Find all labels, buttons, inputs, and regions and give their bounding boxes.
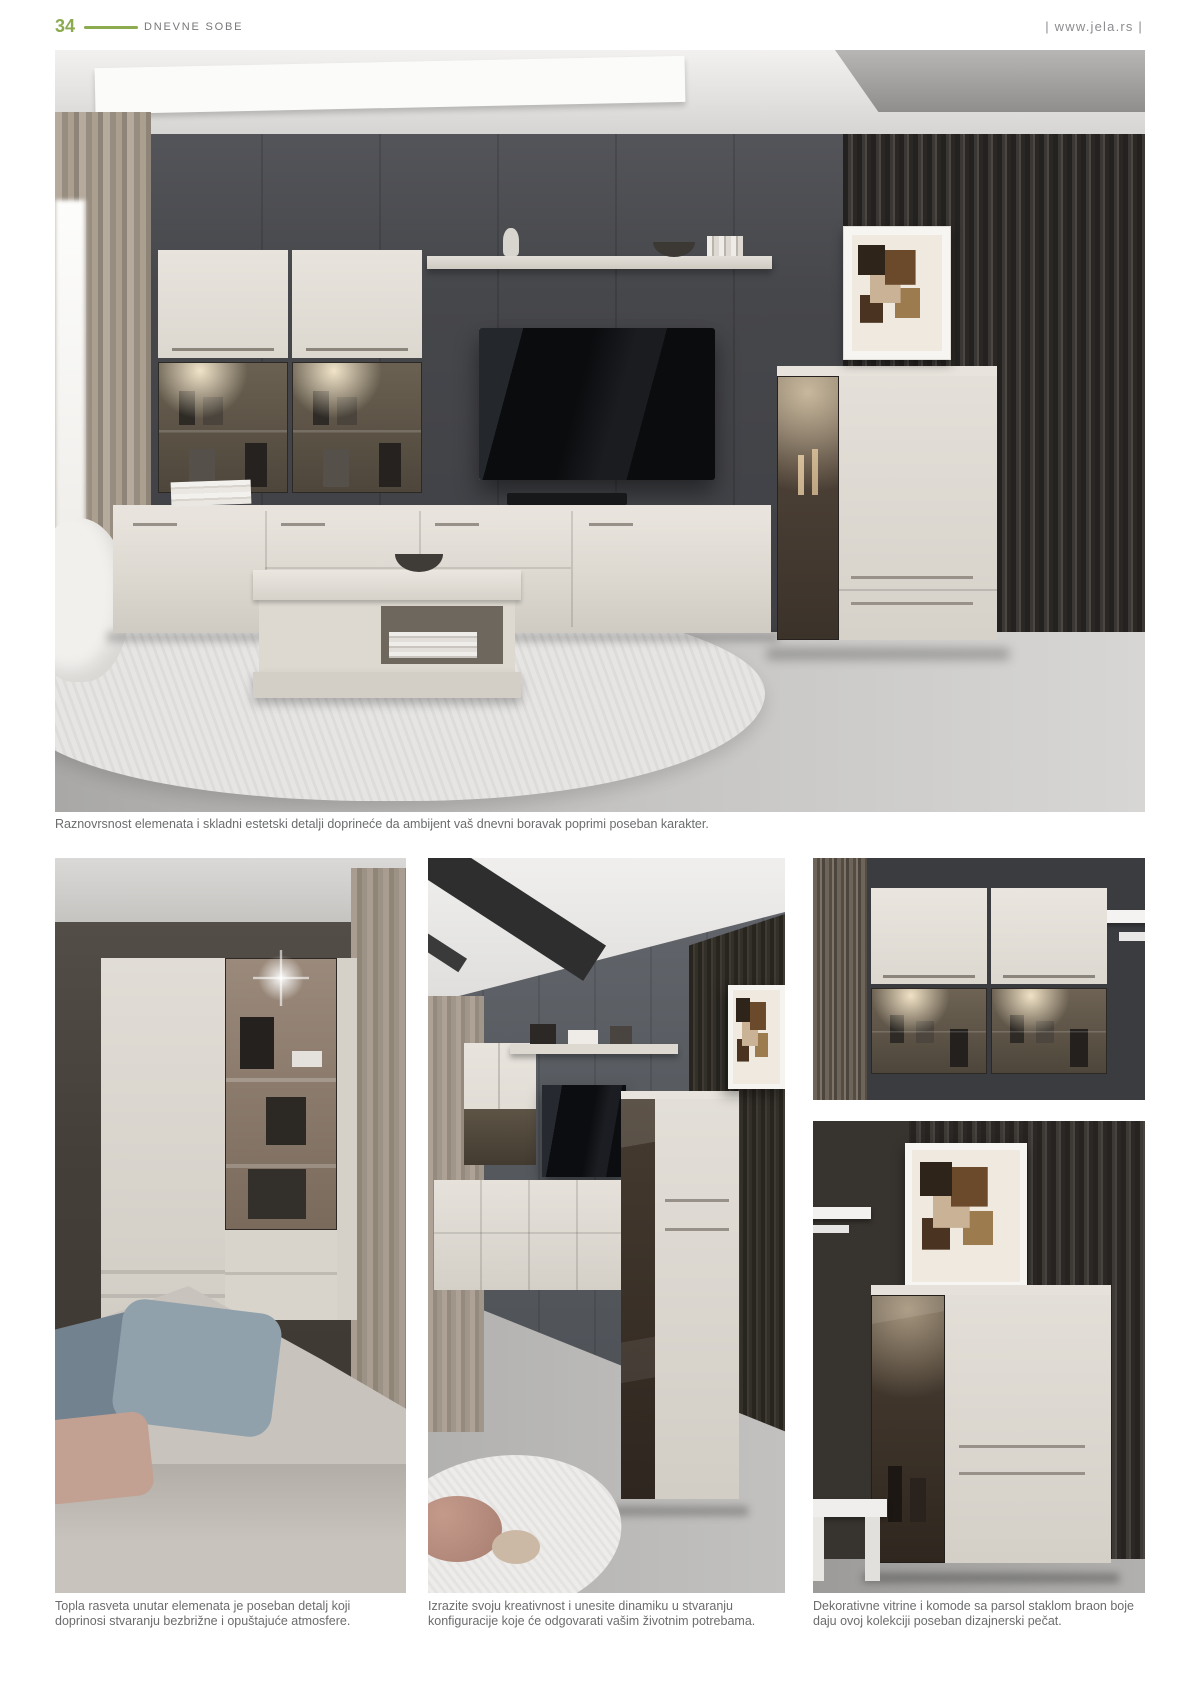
wall-vitrine-left [871, 888, 987, 1074]
hero-image [55, 50, 1145, 812]
pouf-tan [492, 1530, 540, 1564]
shelf-books [707, 236, 743, 256]
cabinet-top [777, 366, 997, 376]
middle-tall-cabinet [621, 1091, 739, 1508]
artwork-collage [912, 1150, 1020, 1282]
cabinet-door-seam [839, 589, 997, 591]
coffee-table-niche [381, 606, 503, 664]
shelf-decor-items [524, 1018, 664, 1044]
cabinet-glass-vitrine [871, 988, 987, 1074]
hero-artwork-frame [843, 226, 951, 360]
right-bottom-tall-cabinet [871, 1285, 1111, 1575]
artwork-collage [852, 235, 942, 351]
right-top-image [813, 858, 1145, 1100]
left-caption: Topla rasveta unutar elemenata je poseba… [55, 1599, 367, 1629]
right-bottom-image [813, 1121, 1145, 1593]
middle-sideboard [434, 1180, 626, 1290]
sideboard-handle [281, 523, 325, 526]
white-bench-leg [813, 1517, 824, 1581]
hero-coffee-table [253, 570, 521, 702]
display-cabinet-side [337, 958, 357, 1320]
cabinet-top [621, 1091, 739, 1099]
right-top-wall-shelf-lower [1119, 932, 1145, 941]
coffee-table-top [253, 570, 521, 600]
middle-wall-shelf [510, 1044, 678, 1054]
header-rule [84, 26, 138, 29]
floating-shelf [813, 1207, 871, 1219]
right-caption: Dekorativne vitrine i komode sa parsol s… [813, 1599, 1153, 1629]
cabinet-parsol-glass-door [621, 1099, 655, 1499]
white-bench-top [813, 1499, 887, 1517]
sideboard-divider [571, 511, 573, 627]
cabinet-doors [655, 1099, 739, 1499]
website-url: | www.jela.rs | [1045, 19, 1143, 34]
page-number: 34 [55, 16, 75, 37]
catalog-page: 34 DNEVNE SOBE | www.jela.rs | [0, 0, 1200, 1697]
sideboard-handle [435, 523, 479, 526]
left-curtain [351, 868, 406, 1434]
middle-column-image [428, 858, 785, 1593]
white-bench-leg [865, 1517, 880, 1581]
display-cabinet-door [101, 958, 225, 1320]
section-title: DNEVNE SOBE [144, 21, 243, 33]
middle-caption: Izrazite svoju kreativnost i unesite din… [428, 1599, 760, 1629]
sideboard-handle [133, 523, 177, 526]
hero-tall-cabinet [777, 366, 997, 652]
media-devices [507, 493, 627, 505]
cabinet-glass-vitrine [292, 362, 422, 493]
middle-tv-screen [542, 1085, 626, 1177]
sideboard-magazines [171, 480, 252, 507]
sofa-cushion-pink [55, 1410, 155, 1505]
wall-vitrine-right [991, 888, 1107, 1074]
floating-shelf-lower [813, 1225, 849, 1233]
cabinet-light-flare [253, 950, 309, 1006]
cabinet-parsol-glass-door [777, 376, 839, 640]
display-cabinet-drawers [225, 1230, 337, 1320]
hero-ceiling-right [835, 50, 1145, 112]
right-top-wall-shelf [1103, 910, 1145, 923]
right-bottom-artwork-frame [905, 1143, 1027, 1289]
cabinet-glass-vitrine [991, 988, 1107, 1074]
cabinet-top [871, 1285, 1111, 1295]
cabinet-doors [945, 1295, 1111, 1563]
tv-screen [479, 328, 715, 480]
coffee-table-base [253, 672, 521, 698]
shelf-vase [503, 228, 519, 256]
middle-wall-cabinet [464, 1043, 536, 1165]
cabinet-door [991, 888, 1107, 984]
left-column-image [55, 858, 406, 1593]
cabinet-glass-vitrine [158, 362, 288, 493]
cabinet-door [871, 888, 987, 984]
hero-caption: Raznovrsnost elemenata i skladni estetsk… [55, 817, 1075, 832]
sideboard-handle [589, 523, 633, 526]
middle-artwork-frame [728, 985, 785, 1089]
hero-wall-shelf [427, 256, 772, 269]
cabinet-door [158, 250, 288, 358]
cabinet-door [292, 250, 422, 358]
right-top-slat-strip [813, 858, 867, 1100]
artwork-collage [733, 990, 780, 1084]
cabinet-doors [839, 376, 997, 640]
hero-wall-cabinet-right [292, 250, 422, 493]
cabinet-parsol-glass-door [871, 1295, 945, 1563]
hero-wall-cabinet-left [158, 250, 288, 493]
